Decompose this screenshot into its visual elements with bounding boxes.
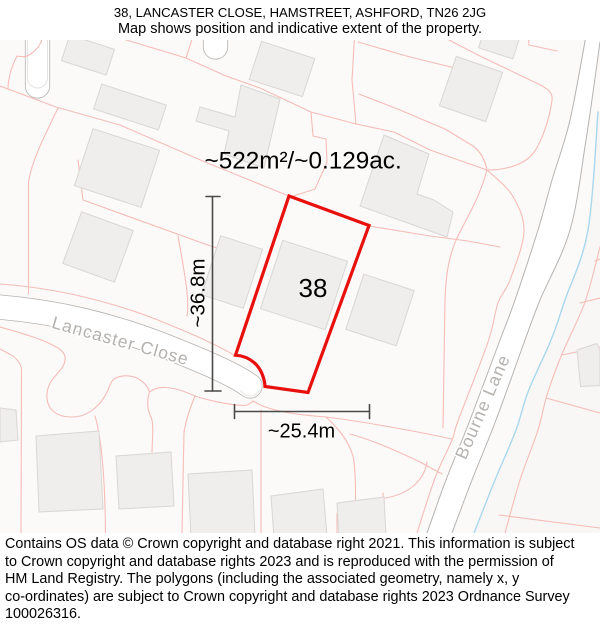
svg-text:38: 38	[299, 273, 328, 303]
svg-text:~25.4m: ~25.4m	[268, 421, 335, 443]
svg-text:~522m²/~0.129ac.: ~522m²/~0.129ac.	[205, 148, 402, 175]
svg-text:~36.8m: ~36.8m	[187, 259, 210, 328]
